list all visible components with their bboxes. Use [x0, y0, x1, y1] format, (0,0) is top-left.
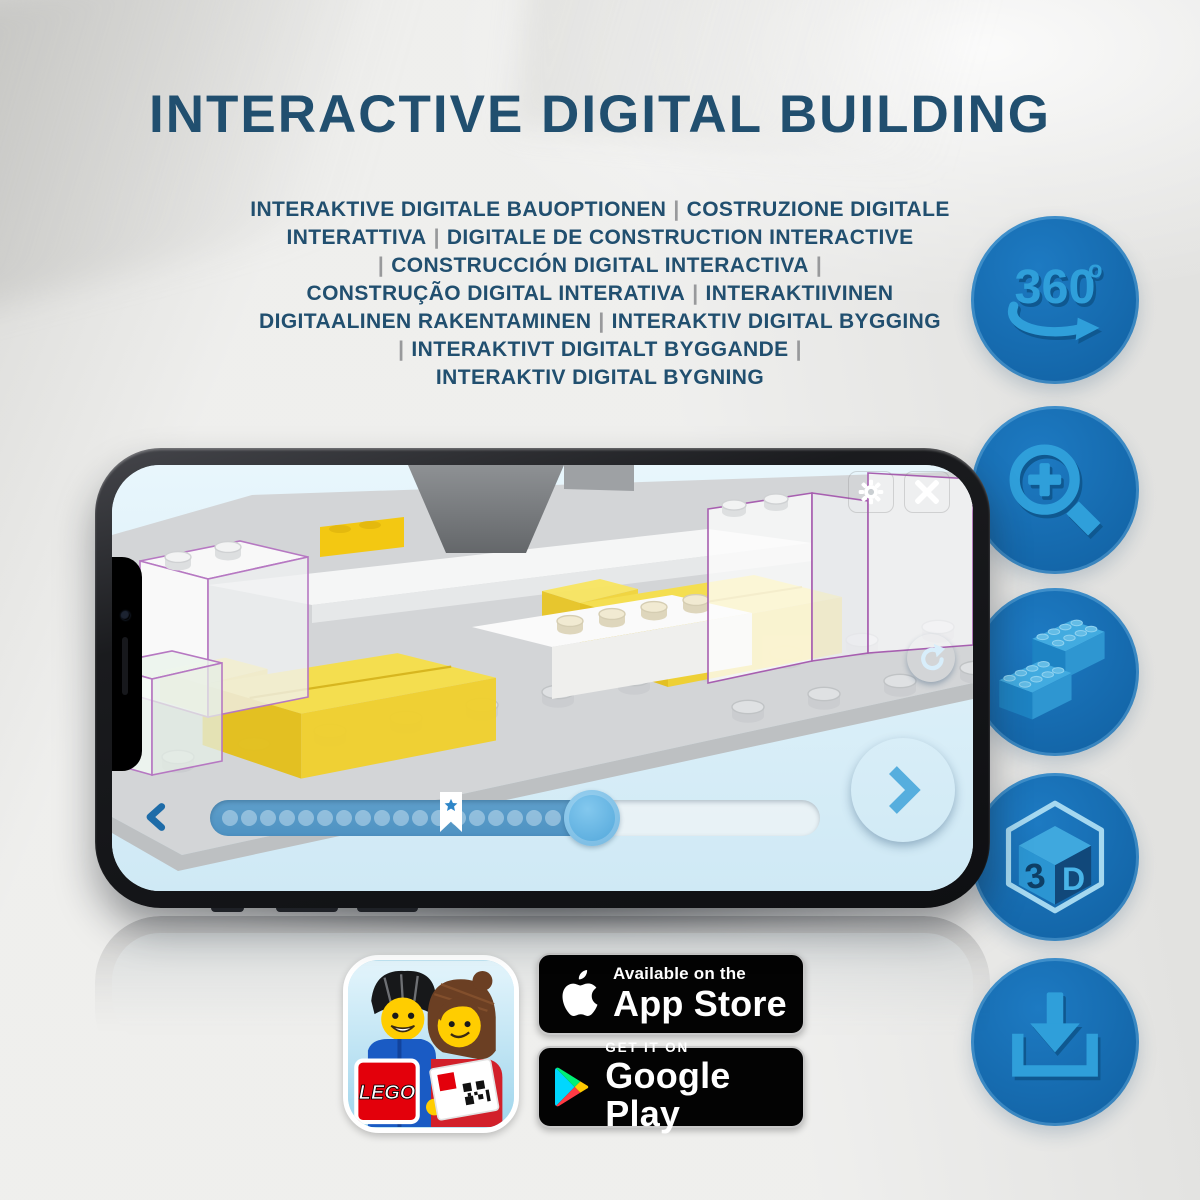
- slider-dot: [317, 810, 333, 826]
- close-button[interactable]: [904, 471, 950, 513]
- close-x-icon: [913, 478, 941, 506]
- slider-dot: [279, 810, 295, 826]
- chevron-left-icon: [135, 795, 179, 839]
- google-play-tagline: GET IT ON: [605, 1041, 787, 1055]
- feature-zoom-badge: [971, 406, 1139, 574]
- 3d-cube-icon: 3 D: [993, 795, 1117, 919]
- slider-dot: [336, 810, 352, 826]
- speaker-slit: [122, 637, 128, 695]
- svg-text:360: 360: [1015, 260, 1096, 314]
- slider-dot: [374, 810, 390, 826]
- build-progress-slider[interactable]: [210, 800, 820, 836]
- app-screen: [112, 465, 973, 891]
- phone-notch: [112, 557, 142, 771]
- slider-dot: [545, 810, 561, 826]
- slider-dot: [469, 810, 485, 826]
- previous-step-button[interactable]: [119, 779, 195, 855]
- feature-bricks-badge: [971, 588, 1139, 756]
- lego-bricks-icon: [993, 610, 1117, 734]
- lego-app-icon: LEGO: [343, 955, 519, 1133]
- slider-dot: [355, 810, 371, 826]
- slider-dot: [412, 810, 428, 826]
- feature-download-badge: [971, 958, 1139, 1126]
- svg-text:o: o: [1088, 256, 1103, 283]
- svg-text:D: D: [1062, 861, 1085, 897]
- camera-dot: [121, 611, 130, 620]
- slider-dot: [222, 810, 238, 826]
- app-store-name: App Store: [613, 985, 787, 1023]
- slider-fill: [210, 800, 608, 836]
- next-step-button[interactable]: [851, 738, 955, 842]
- page-title: INTERACTIVE DIGITAL BUILDING: [0, 84, 1200, 145]
- apple-logo-icon: [555, 968, 599, 1020]
- app-store-tagline: Available on the: [613, 965, 787, 983]
- gear-icon: [856, 477, 886, 507]
- poster: INTERACTIVE DIGITAL BUILDING INTERAKTIVE…: [0, 0, 1200, 1200]
- slider-dot: [488, 810, 504, 826]
- slider-dot: [260, 810, 276, 826]
- chevron-right-icon: [871, 758, 935, 822]
- phone-mockup: [95, 448, 990, 908]
- svg-text:LEGO: LEGO: [359, 1082, 416, 1104]
- slider-handle[interactable]: [564, 790, 620, 846]
- google-play-badge[interactable]: GET IT ON Google Play: [537, 1046, 805, 1128]
- slider-dots: [222, 810, 580, 826]
- subtitle-multilingual: INTERAKTIVE DIGITALE BAUOPTIONEN|COSTRUZ…: [120, 196, 1080, 392]
- zoom-in-icon: [993, 428, 1117, 552]
- app-store-badge[interactable]: Available on the App Store: [537, 953, 805, 1035]
- google-play-icon: [555, 1063, 591, 1111]
- feature-3d-badge: 3 D: [971, 773, 1139, 941]
- star-icon: [443, 797, 459, 813]
- slider-dot: [241, 810, 257, 826]
- rotate-model-button[interactable]: [907, 634, 955, 682]
- slider-dot: [526, 810, 542, 826]
- rotate-arrow-icon: [914, 641, 948, 675]
- lego-app-artwork: LEGO: [348, 960, 514, 1128]
- google-play-name: Google Play: [605, 1057, 787, 1133]
- slider-dot: [393, 810, 409, 826]
- slider-dot: [298, 810, 314, 826]
- download-icon: [993, 980, 1117, 1104]
- slider-dot: [507, 810, 523, 826]
- settings-button[interactable]: [848, 471, 894, 513]
- 360-rotation-icon: 360 360 o o: [993, 238, 1117, 362]
- feature-360-badge: 360 360 o o: [971, 216, 1139, 384]
